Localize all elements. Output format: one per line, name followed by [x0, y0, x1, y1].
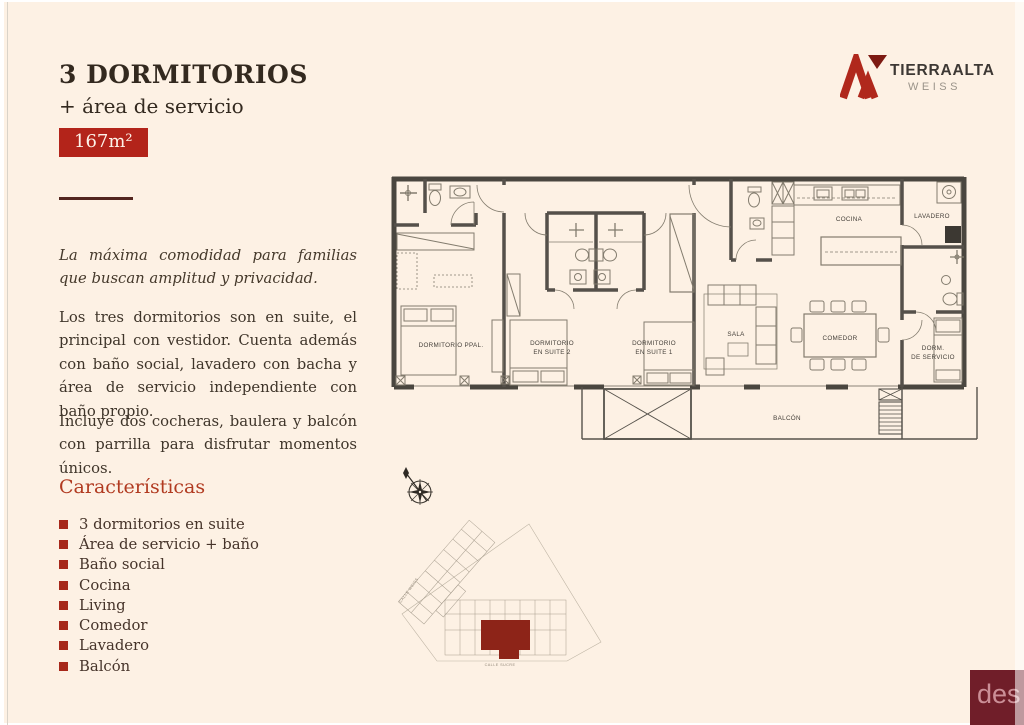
floorplan-canvas: DORMITORIO PPAL. DORMITORIO EN SUITE 2 D…: [384, 162, 1024, 682]
watermark-text: des: [977, 679, 1021, 710]
street-label-left: CALLE WEISS: [399, 577, 420, 603]
logo-sub-text: WEISS: [908, 81, 961, 93]
left-edge-line: [7, 2, 8, 725]
compass-icon: [403, 467, 433, 505]
area-badge: 167m²: [59, 128, 148, 157]
feature-label: Baño social: [79, 556, 165, 573]
room-label-comedor: COMEDOR: [823, 335, 858, 342]
feature-label: Comedor: [79, 617, 147, 634]
description-paragraph-1: Los tres dormitorios son en suite, el pr…: [59, 306, 357, 423]
bullet-square-icon: [59, 560, 68, 569]
room-label-suite1-line1: DORMITORIO: [632, 340, 676, 347]
divider-rule: [59, 197, 133, 200]
feature-item: Lavadero: [59, 636, 259, 656]
feature-item: Balcón: [59, 656, 259, 676]
balcony: [582, 387, 977, 439]
brochure-page: 3 DORMITORIOS + área de servicio 167m² T…: [4, 2, 1024, 723]
feature-label: Lavadero: [79, 637, 149, 654]
feature-item: Comedor: [59, 615, 259, 635]
features-heading: Características: [59, 476, 205, 498]
right-edge-strip: [1015, 2, 1024, 725]
feature-label: Área de servicio + baño: [79, 536, 259, 553]
feature-item: Cocina: [59, 575, 259, 595]
feature-item: 3 dormitorios en suite: [59, 514, 259, 534]
feature-label: 3 dormitorios en suite: [79, 516, 245, 533]
interior-walls: [394, 179, 964, 387]
feature-label: Cocina: [79, 577, 131, 594]
bullet-square-icon: [59, 581, 68, 590]
room-label-lavadero: LAVADERO: [914, 213, 950, 220]
room-label-sala: SALA: [727, 331, 745, 338]
bullet-square-icon: [59, 621, 68, 630]
bullet-square-icon: [59, 540, 68, 549]
room-label-dorm-servicio-line1: DORM.: [922, 345, 945, 352]
room-label-cocina: COCINA: [836, 216, 863, 223]
room-label-suite2-line1: DORMITORIO: [530, 340, 574, 347]
room-labels: DORMITORIO PPAL. DORMITORIO EN SUITE 2 D…: [419, 213, 955, 422]
logo-brand-text: TIERRAALTA: [890, 62, 995, 80]
room-label-suite2-line2: EN SUITE 2: [533, 349, 570, 356]
feature-label: Living: [79, 597, 126, 614]
tierraalta-logo-icon: [840, 54, 888, 100]
bullet-square-icon: [59, 641, 68, 650]
tagline-paragraph: La máxima comodidad para familias que bu…: [59, 245, 357, 291]
room-label-suite1-line2: EN SUITE 1: [635, 349, 672, 356]
room-label-dormitorio-ppal: DORMITORIO PPAL.: [419, 342, 484, 349]
outer-walls: [392, 177, 964, 387]
feature-item: Baño social: [59, 555, 259, 575]
siteplan: CALLE WEISS CALLE SUCRE: [398, 520, 601, 667]
bullet-square-icon: [59, 520, 68, 529]
feature-label: Balcón: [79, 658, 130, 675]
bullet-square-icon: [59, 662, 68, 671]
page-title: 3 DORMITORIOS: [59, 60, 308, 89]
description-paragraph-2: Incluye dos cocheras, baulera y balcón c…: [59, 410, 357, 480]
feature-item: Área de servicio + baño: [59, 534, 259, 554]
bullet-square-icon: [59, 601, 68, 610]
page-subtitle: + área de servicio: [59, 94, 244, 118]
room-label-dorm-servicio-line2: DE SERVICIO: [911, 354, 955, 361]
siteplan-highlighted-unit: [481, 620, 530, 659]
furniture: [396, 182, 964, 385]
feature-item: Living: [59, 595, 259, 615]
street-label-bottom: CALLE SUCRE: [485, 663, 516, 667]
room-label-balcon: BALCÓN: [773, 413, 801, 422]
floorplan: DORMITORIO PPAL. DORMITORIO EN SUITE 2 D…: [392, 177, 977, 439]
features-list: 3 dormitorios en suite Área de servicio …: [59, 514, 259, 676]
